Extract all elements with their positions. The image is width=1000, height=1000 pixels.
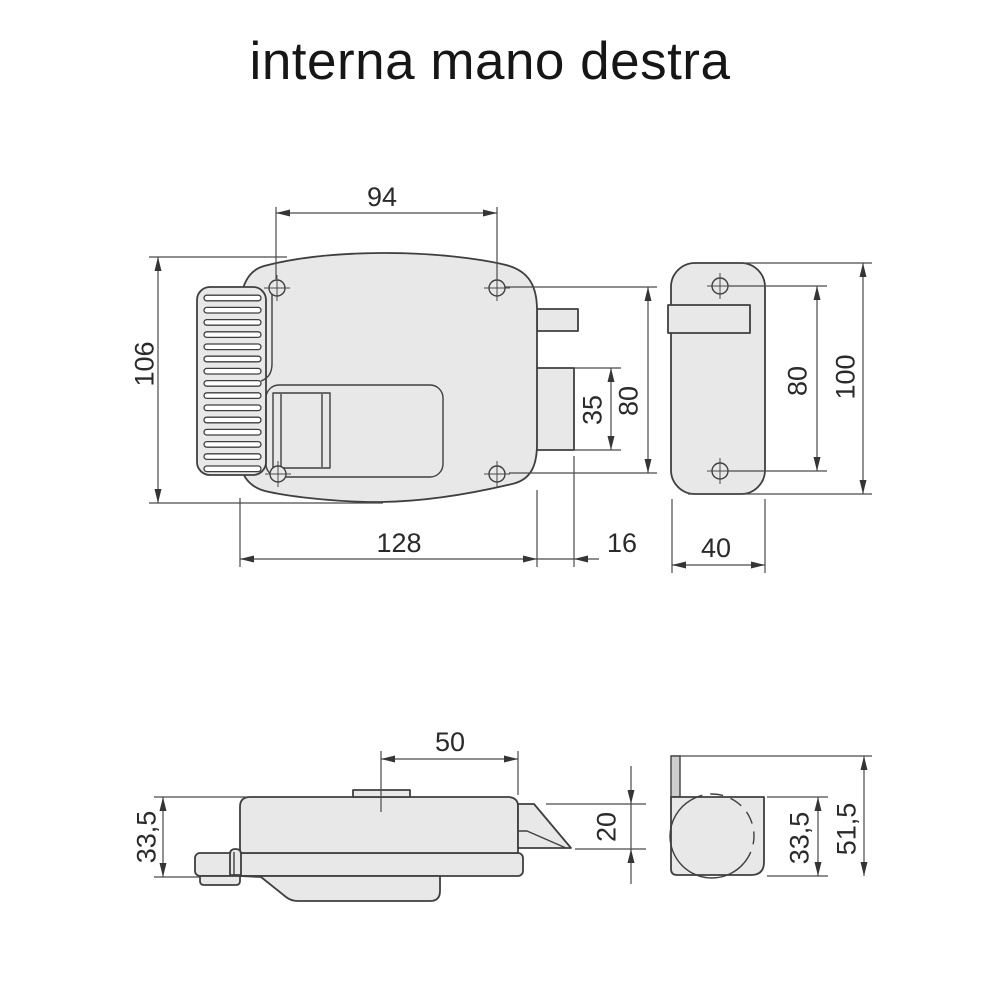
strike-plate-slot	[668, 305, 750, 333]
technical-drawing: interna mano destra	[0, 0, 1000, 1000]
dimension-label: 106	[129, 341, 159, 386]
dimension-label: 40	[701, 533, 731, 563]
drawing-title: interna mano destra	[250, 32, 731, 91]
dimension-label: 35	[577, 395, 607, 425]
dimension-label: 50	[435, 727, 465, 757]
bottom-body	[240, 797, 518, 853]
front-view	[197, 253, 578, 502]
left-clip	[230, 849, 241, 875]
strike-plate-body	[671, 263, 765, 494]
dimension-20: 20	[546, 766, 646, 884]
strike-box	[671, 797, 764, 875]
dimension-label: 128	[376, 528, 421, 558]
dimension-label: 33,5	[784, 812, 814, 865]
plate-edge	[671, 756, 680, 797]
bottom-view	[195, 790, 571, 901]
dimension-label: 100	[830, 354, 860, 399]
dimension-label: 20	[591, 812, 621, 842]
dimension-label: 80	[782, 366, 812, 396]
dimension-label: 16	[607, 528, 637, 558]
dimension-40: 40	[672, 499, 765, 573]
dimension-label: 33,5	[131, 811, 161, 864]
dimension-label: 80	[613, 386, 643, 416]
dimension-33-5-side: 33,5	[767, 797, 828, 876]
lower-tab	[200, 876, 240, 885]
mounting-tab	[537, 309, 578, 331]
dimension-label: 51,5	[831, 803, 861, 856]
strike-plate-front-view	[668, 263, 765, 494]
grille-slats	[204, 295, 261, 471]
technical-drawing-page: interna mano destra	[0, 0, 1000, 1000]
base-plate	[195, 853, 523, 876]
latch-bolt-bottom	[518, 804, 571, 848]
dimension-51-5: 51,5	[831, 756, 867, 876]
dimension-label: 94	[367, 182, 397, 212]
lower-block	[240, 876, 440, 901]
